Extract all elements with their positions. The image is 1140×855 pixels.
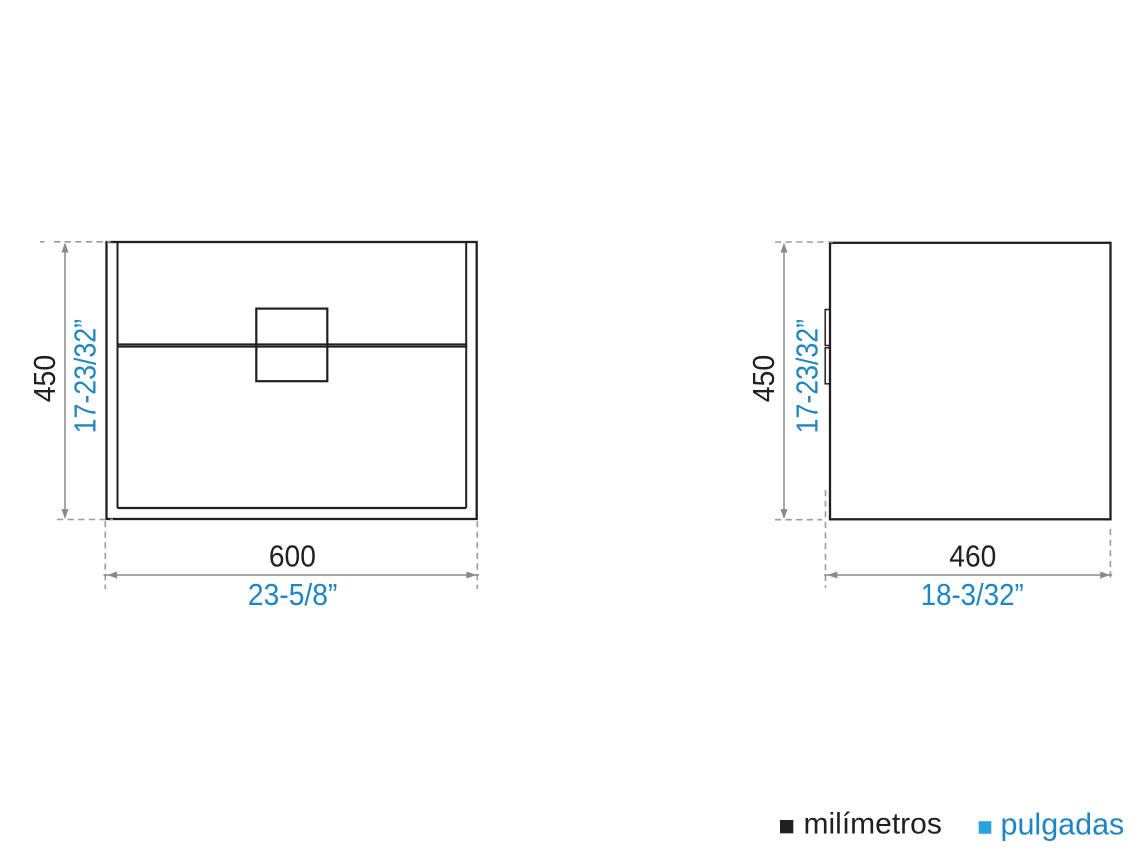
- svg-text:17-23/32”: 17-23/32”: [790, 319, 825, 434]
- svg-text:450: 450: [746, 355, 781, 403]
- svg-text:milímetros: milímetros: [804, 808, 942, 841]
- svg-text:600: 600: [269, 539, 316, 574]
- svg-text:18-3/32”: 18-3/32”: [921, 577, 1024, 612]
- svg-text:17-23/32”: 17-23/32”: [68, 319, 103, 434]
- svg-text:pulgadas: pulgadas: [1001, 808, 1125, 842]
- svg-text:23-5/8”: 23-5/8”: [248, 577, 338, 612]
- svg-text:450: 450: [27, 355, 62, 403]
- svg-text:460: 460: [949, 539, 996, 574]
